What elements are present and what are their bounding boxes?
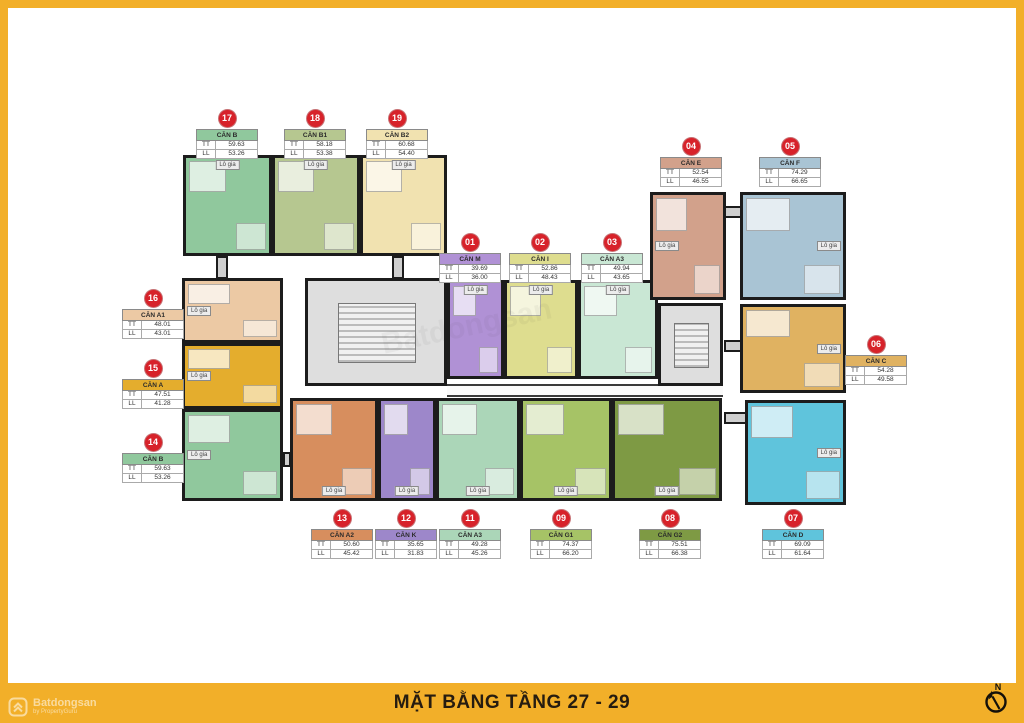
unit-number-badge: 11	[462, 510, 479, 527]
unit-area-row-ll: LL 66.38	[639, 550, 701, 559]
unit-area-row-ll: LL 53.26	[196, 150, 258, 159]
unit-number-badge: 03	[604, 234, 621, 251]
unit-number-badge: 17	[219, 110, 236, 127]
unit-area-row-ll: LL 48.43	[509, 274, 571, 283]
unit-name: CĂN A	[122, 379, 184, 391]
tt-label: TT	[376, 541, 395, 549]
unit-13-can-a2-area: Lô gia	[290, 398, 378, 501]
ll-value: 48.43	[529, 274, 570, 282]
ll-label: LL	[440, 274, 459, 282]
unit-area-row-ll: LL 45.26	[439, 550, 501, 559]
unit-11-can-a3-area: Lô gia	[436, 398, 520, 501]
unit-name: CĂN B1	[284, 129, 346, 141]
unit-name: CĂN K	[375, 529, 437, 541]
tt-label: TT	[123, 391, 142, 399]
unit-area-row-ll: LL 54.40	[366, 150, 428, 159]
page-title: MẶT BẰNG TẦNG 27 - 29	[394, 692, 630, 714]
tt-label: TT	[367, 141, 386, 149]
unit-area-row-tt: TT 58.18	[284, 141, 346, 150]
tt-value: 60.68	[386, 141, 427, 149]
ll-value: 54.40	[386, 150, 427, 158]
tt-label: TT	[440, 541, 459, 549]
tt-value: 47.51	[142, 391, 183, 399]
unit-area-row-ll: LL 66.65	[759, 178, 821, 187]
ll-value: 53.38	[304, 150, 345, 158]
brand-byline: by PropertyGuru	[33, 709, 97, 716]
unit-label-13: 13 CĂN A2 TT 50.60 LL 45.42	[311, 510, 373, 559]
unit-19-can-b2-area: Lô gia	[360, 155, 447, 256]
balcony-label: Lô gia	[817, 241, 841, 251]
staircase	[674, 323, 709, 368]
unit-area-row-tt: TT 60.68	[366, 141, 428, 150]
unit-area-row-tt: TT 69.09	[762, 541, 824, 550]
unit-name: CĂN B	[196, 129, 258, 141]
unit-number-badge: 07	[785, 510, 802, 527]
tt-label: TT	[760, 169, 779, 177]
unit-name: CĂN C	[845, 355, 907, 367]
tt-value: 49.28	[459, 541, 500, 549]
unit-area-row-tt: TT 48.01	[122, 321, 184, 330]
unit-area-row-tt: TT 59.63	[196, 141, 258, 150]
unit-name: CĂN G1	[530, 529, 592, 541]
unit-number-badge: 02	[532, 234, 549, 251]
ll-label: LL	[763, 550, 782, 558]
unit-area-row-ll: LL 53.26	[122, 474, 184, 483]
balcony-label: Lô gia	[187, 450, 211, 460]
unit-label-01: 01 CĂN M TT 39.69 LL 36.00	[439, 234, 501, 283]
ll-label: LL	[640, 550, 659, 558]
unit-name: CĂN I	[509, 253, 571, 265]
unit-04-can-e-area: Lô gia	[650, 192, 726, 300]
ll-value: 61.64	[782, 550, 823, 558]
unit-area-row-tt: TT 59.63	[122, 465, 184, 474]
unit-label-02: 02 CĂN I TT 52.86 LL 48.43	[509, 234, 571, 283]
unit-15-can-a-area: Lô gia	[182, 343, 283, 409]
unit-area-row-ll: LL 61.64	[762, 550, 824, 559]
ll-label: LL	[197, 150, 216, 158]
ll-value: 46.55	[680, 178, 721, 186]
unit-area-row-ll: LL 31.83	[375, 550, 437, 559]
balcony-label: Lô gia	[322, 486, 346, 496]
ll-label: LL	[760, 178, 779, 186]
balcony-label: Lô gia	[395, 486, 419, 496]
unit-number-badge: 16	[145, 290, 162, 307]
ll-label: LL	[510, 274, 529, 282]
balcony-label: Lô gia	[391, 160, 415, 170]
unit-label-05: 05 CĂN F TT 74.29 LL 66.65	[759, 138, 821, 187]
unit-area-row-tt: TT 52.86	[509, 265, 571, 274]
unit-label-14: 14 CĂN B TT 59.63 LL 53.26	[122, 434, 184, 483]
brand-text-block: Batdongsan by PropertyGuru	[33, 698, 97, 716]
frame-border-top	[0, 0, 1024, 8]
balcony-label: Lô gia	[187, 371, 211, 381]
ll-value: 31.83	[395, 550, 436, 558]
tt-value: 52.54	[680, 169, 721, 177]
unit-name: CĂN E	[660, 157, 722, 169]
unit-label-08: 08 CĂN G2 TT 75.51 LL 66.38	[639, 510, 701, 559]
ll-label: LL	[367, 150, 386, 158]
unit-label-06: 06 CĂN C TT 54.28 LL 49.58	[845, 336, 907, 385]
unit-name: CĂN M	[439, 253, 501, 265]
tt-label: TT	[440, 265, 459, 273]
balcony-label: Lô gia	[466, 486, 490, 496]
balcony-label: Lô gia	[554, 486, 578, 496]
ll-label: LL	[440, 550, 459, 558]
tt-value: 54.28	[865, 367, 906, 375]
ll-label: LL	[312, 550, 331, 558]
unit-area-row-tt: TT 49.94	[581, 265, 643, 274]
unit-number-badge: 14	[145, 434, 162, 451]
unit-name: CĂN A3	[581, 253, 643, 265]
frame-border-right	[1016, 0, 1024, 723]
tt-value: 59.63	[142, 465, 183, 473]
unit-area-row-tt: TT 50.60	[311, 541, 373, 550]
unit-name: CĂN B	[122, 453, 184, 465]
unit-label-03: 03 CĂN A3 TT 49.94 LL 43.65	[581, 234, 643, 283]
unit-area-row-tt: TT 74.37	[530, 541, 592, 550]
tt-value: 74.29	[779, 169, 820, 177]
unit-name: CĂN G2	[639, 529, 701, 541]
tt-value: 39.69	[459, 265, 500, 273]
unit-area-row-tt: TT 49.28	[439, 541, 501, 550]
unit-number-badge: 04	[683, 138, 700, 155]
ll-value: 45.26	[459, 550, 500, 558]
unit-05-can-f-area: Lô gia	[740, 192, 846, 300]
ll-label: LL	[285, 150, 304, 158]
ll-value: 53.26	[142, 474, 183, 482]
unit-label-17: 17 CĂN B TT 59.63 LL 53.26	[196, 110, 258, 159]
unit-08-can-g2-area: Lô gia	[612, 398, 722, 501]
unit-area-row-tt: TT 74.29	[759, 169, 821, 178]
unit-area-row-ll: LL 49.58	[845, 376, 907, 385]
unit-area-row-ll: LL 36.00	[439, 274, 501, 283]
unit-14-can-b-area: Lô gia	[182, 409, 283, 501]
unit-number-badge: 06	[868, 336, 885, 353]
unit-12-can-k-area: Lô gia	[378, 398, 436, 501]
unit-area-row-tt: TT 54.28	[845, 367, 907, 376]
frame-border-left	[0, 0, 8, 723]
tt-label: TT	[285, 141, 304, 149]
ll-label: LL	[582, 274, 601, 282]
unit-16-can-a1-area: Lô gia	[182, 278, 283, 343]
unit-area-row-ll: LL 43.65	[581, 274, 643, 283]
unit-area-row-ll: LL 53.38	[284, 150, 346, 159]
ll-value: 45.42	[331, 550, 372, 558]
svg-text:N: N	[995, 682, 1002, 692]
unit-area-row-ll: LL 43.01	[122, 330, 184, 339]
tt-value: 48.01	[142, 321, 183, 329]
tt-value: 50.60	[331, 541, 372, 549]
north-compass: N	[982, 681, 1010, 720]
north-arrow-icon: N	[982, 681, 1010, 715]
balcony-label: Lô gia	[215, 160, 239, 170]
unit-label-04: 04 CĂN E TT 52.54 LL 46.55	[660, 138, 722, 187]
unit-number-badge: 19	[389, 110, 406, 127]
unit-area-row-tt: TT 47.51	[122, 391, 184, 400]
balcony-label: Lô gia	[463, 285, 487, 295]
ll-label: LL	[123, 330, 142, 338]
tt-value: 52.86	[529, 265, 570, 273]
ll-label: LL	[123, 474, 142, 482]
tt-label: TT	[312, 541, 331, 549]
unit-name: CĂN A3	[439, 529, 501, 541]
ll-value: 53.26	[216, 150, 257, 158]
unit-name: CĂN A1	[122, 309, 184, 321]
unit-name: CĂN B2	[366, 129, 428, 141]
tt-label: TT	[123, 321, 142, 329]
unit-number-badge: 12	[398, 510, 415, 527]
unit-06-can-c-area: Lô gia	[740, 304, 846, 393]
brand-watermark: Batdongsan by PropertyGuru	[8, 697, 97, 717]
ll-value: 41.28	[142, 400, 183, 408]
tt-value: 75.51	[659, 541, 700, 549]
balcony-label: Lô gia	[304, 160, 328, 170]
balcony-label: Lô gia	[817, 344, 841, 354]
unit-18-can-b1-area: Lô gia	[272, 155, 360, 256]
ll-label: LL	[661, 178, 680, 186]
tt-label: TT	[197, 141, 216, 149]
unit-label-07: 07 CĂN D TT 69.09 LL 61.64	[762, 510, 824, 559]
unit-label-19: 19 CĂN B2 TT 60.68 LL 54.40	[366, 110, 428, 159]
unit-name: CĂN A2	[311, 529, 373, 541]
unit-07-can-d-area: Lô gia	[745, 400, 846, 505]
unit-number-badge: 09	[553, 510, 570, 527]
unit-label-18: 18 CĂN B1 TT 58.18 LL 53.38	[284, 110, 346, 159]
corridor-connector	[392, 256, 404, 279]
balcony-label: Lô gia	[655, 241, 679, 251]
tt-label: TT	[123, 465, 142, 473]
unit-label-16: 16 CĂN A1 TT 48.01 LL 43.01	[122, 290, 184, 339]
unit-area-row-ll: LL 41.28	[122, 400, 184, 409]
tt-label: TT	[661, 169, 680, 177]
unit-number-badge: 05	[782, 138, 799, 155]
unit-area-row-tt: TT 52.54	[660, 169, 722, 178]
unit-area-row-ll: LL 66.20	[530, 550, 592, 559]
tt-label: TT	[846, 367, 865, 375]
ll-value: 66.65	[779, 178, 820, 186]
balcony-label: Lô gia	[606, 285, 630, 295]
tt-label: TT	[582, 265, 601, 273]
unit-label-09: 09 CĂN G1 TT 74.37 LL 66.20	[530, 510, 592, 559]
unit-number-badge: 15	[145, 360, 162, 377]
unit-area-row-tt: TT 39.69	[439, 265, 501, 274]
unit-label-12: 12 CĂN K TT 35.65 LL 31.83	[375, 510, 437, 559]
balcony-label: Lô gia	[655, 486, 679, 496]
tt-label: TT	[640, 541, 659, 549]
unit-area-row-ll: LL 46.55	[660, 178, 722, 187]
tt-label: TT	[510, 265, 529, 273]
tt-value: 49.94	[601, 265, 642, 273]
tt-label: TT	[531, 541, 550, 549]
ll-value: 43.01	[142, 330, 183, 338]
ll-value: 66.20	[550, 550, 591, 558]
unit-number-badge: 18	[307, 110, 324, 127]
unit-label-11: 11 CĂN A3 TT 49.28 LL 45.26	[439, 510, 501, 559]
balcony-label: Lô gia	[187, 306, 211, 316]
ll-value: 36.00	[459, 274, 500, 282]
ll-label: LL	[846, 376, 865, 384]
corridor-connector	[216, 256, 228, 279]
elevator-stair-core-right	[658, 303, 723, 386]
balcony-label: Lô gia	[817, 448, 841, 458]
tt-label: TT	[763, 541, 782, 549]
unit-number-badge: 01	[462, 234, 479, 251]
ll-label: LL	[531, 550, 550, 558]
unit-number-badge: 08	[662, 510, 679, 527]
ll-label: LL	[376, 550, 395, 558]
unit-name: CĂN D	[762, 529, 824, 541]
unit-17-can-b-area: Lô gia	[183, 155, 272, 256]
unit-name: CĂN F	[759, 157, 821, 169]
ll-value: 66.38	[659, 550, 700, 558]
tt-value: 74.37	[550, 541, 591, 549]
tt-value: 59.63	[216, 141, 257, 149]
tt-value: 35.65	[395, 541, 436, 549]
batdongsan-logo-icon	[8, 697, 28, 717]
unit-label-15: 15 CĂN A TT 47.51 LL 41.28	[122, 360, 184, 409]
unit-area-row-tt: TT 35.65	[375, 541, 437, 550]
floor-plan-page: Lô gia Lô gia Lô gia Lô gia Lô gia Lô gi…	[0, 0, 1024, 723]
unit-area-row-ll: LL 45.42	[311, 550, 373, 559]
title-bar: MẶT BẰNG TẦNG 27 - 29 Batdongsan by Prop…	[0, 683, 1024, 723]
corridor-connector	[724, 412, 747, 424]
ll-label: LL	[123, 400, 142, 408]
unit-area-row-tt: TT 75.51	[639, 541, 701, 550]
unit-number-badge: 13	[334, 510, 351, 527]
tt-value: 69.09	[782, 541, 823, 549]
brand-name: Batdongsan	[33, 698, 97, 709]
tt-value: 58.18	[304, 141, 345, 149]
ll-value: 49.58	[865, 376, 906, 384]
unit-09-can-g1-area: Lô gia	[520, 398, 612, 501]
ll-value: 43.65	[601, 274, 642, 282]
unit-03-can-a3-area: Lô gia	[578, 280, 658, 379]
